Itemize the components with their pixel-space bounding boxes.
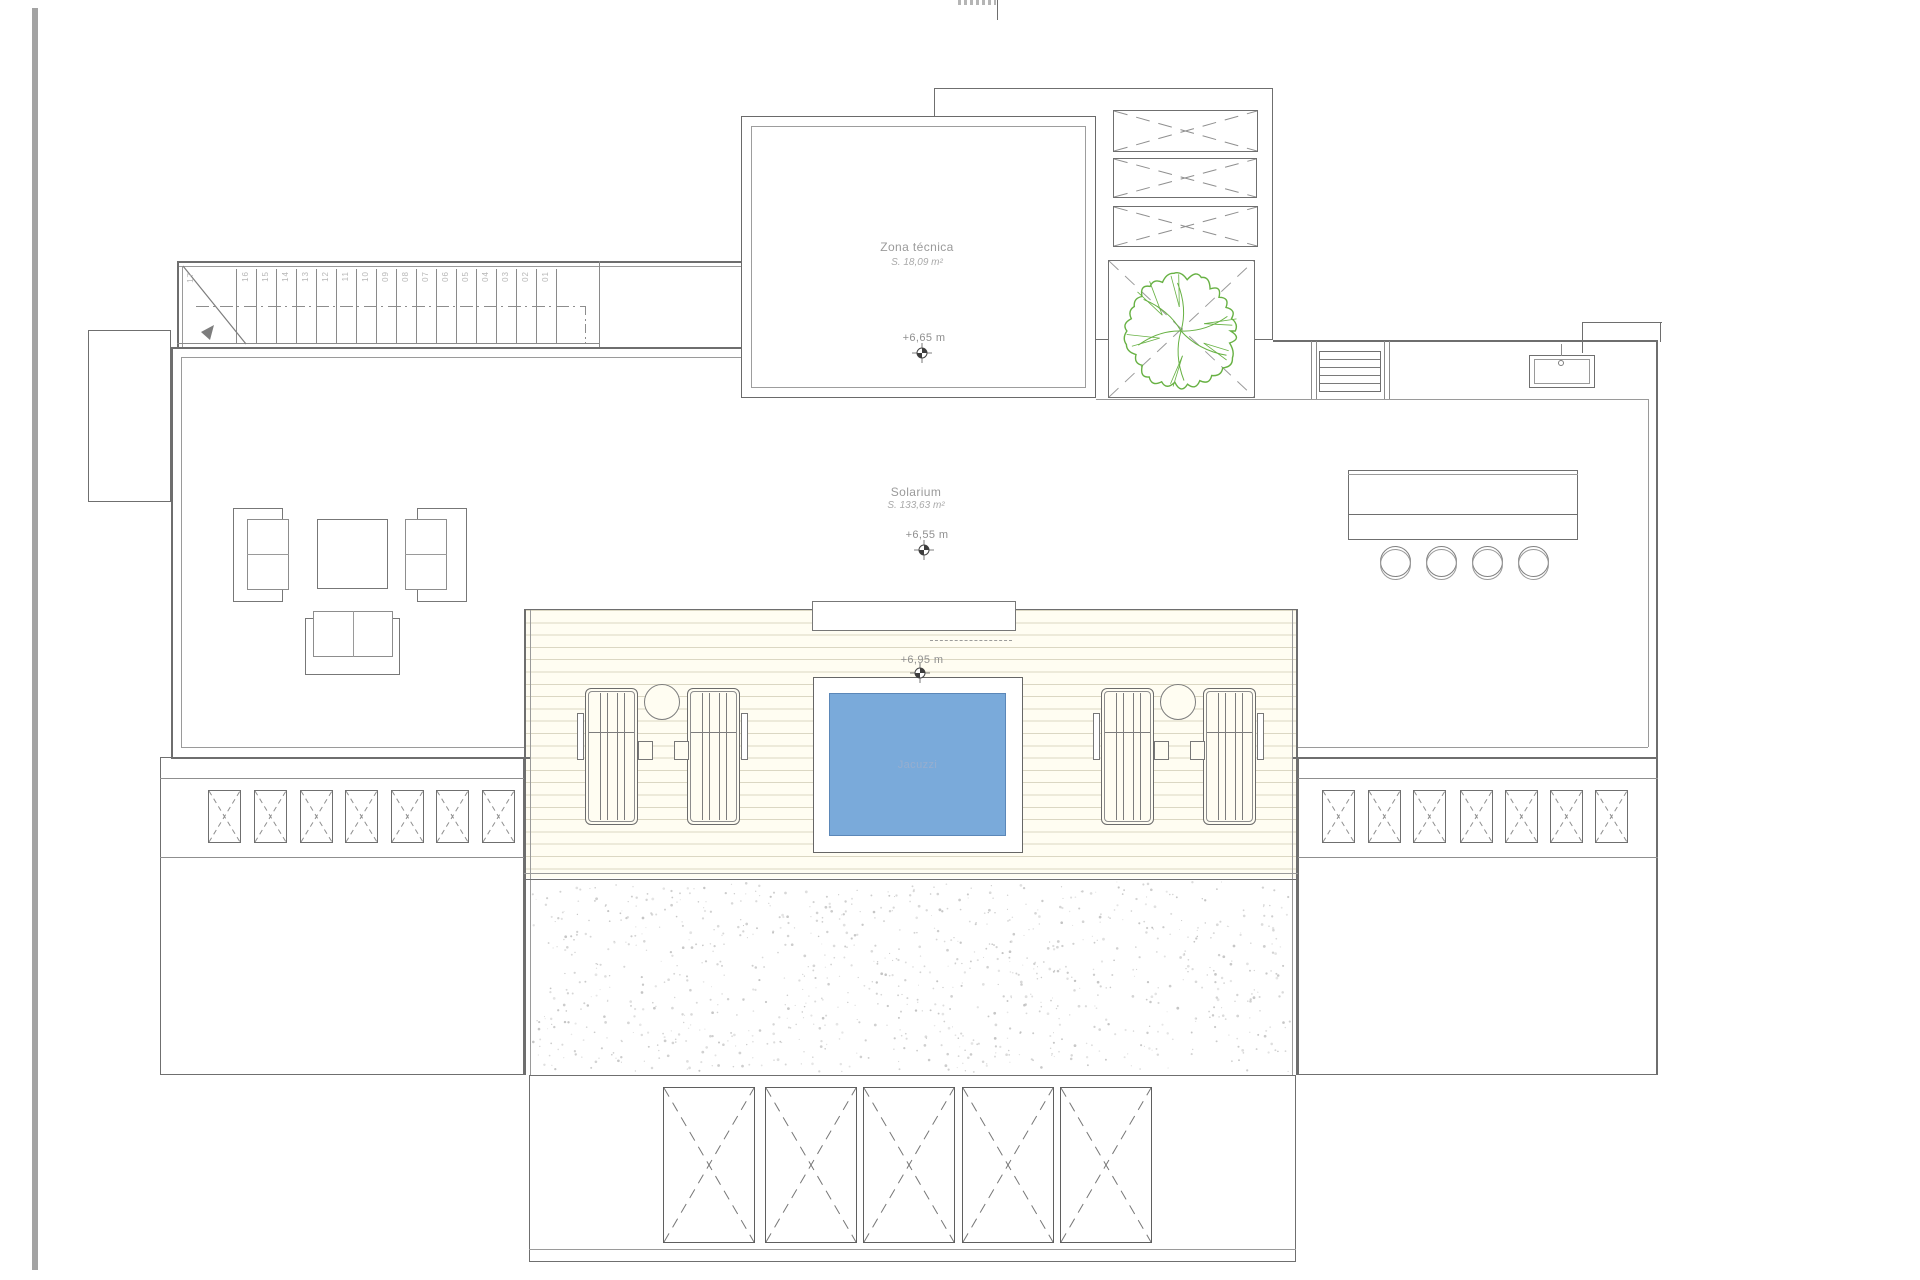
lounger-side-shelf — [577, 713, 584, 760]
dashed-x-hatch — [864, 1088, 954, 1242]
wall-line — [1561, 344, 1562, 356]
lounger-slat — [1123, 693, 1124, 820]
lounger-slat — [600, 693, 601, 820]
stair-number: 04 — [481, 271, 490, 282]
stair-centerline — [196, 306, 585, 307]
wall-line — [1316, 341, 1317, 399]
lounger-slat — [617, 693, 618, 820]
wall-line — [177, 261, 741, 263]
wall-line — [182, 266, 183, 347]
hatched-vent — [1113, 110, 1258, 152]
floor-plan: Zona técnica S. 18,09 m² +6,65 m Solariu… — [0, 0, 1920, 1280]
wall-line — [1292, 757, 1658, 759]
wall-line — [1648, 399, 1649, 747]
bar-stool-shadow-ring — [1380, 549, 1411, 580]
level-marker-icon — [912, 343, 932, 363]
zona-tecnica-area: S. 18,09 m² — [837, 257, 997, 268]
hatched-vent — [1113, 206, 1258, 247]
dashed-x-hatch — [1551, 791, 1582, 842]
bottom-block-line — [529, 1249, 1296, 1250]
grill — [1319, 351, 1381, 392]
lounger-headrest-line — [1207, 732, 1252, 733]
wall-line — [530, 609, 531, 1075]
deck-step — [812, 601, 1016, 631]
deck-side-table — [1154, 741, 1169, 760]
lounger-slat — [726, 693, 727, 820]
dashed-x-hatch — [1506, 791, 1537, 842]
lounger-side-shelf — [1093, 713, 1100, 760]
lounger-slat — [1242, 693, 1243, 820]
lounger-slat — [1218, 693, 1219, 820]
wall-line — [171, 757, 530, 759]
lounger-side-shelf — [1257, 713, 1264, 760]
wall-line — [1656, 340, 1658, 1075]
lounger-slat — [1235, 693, 1236, 820]
dashed-x-hatch — [1114, 159, 1256, 197]
dashed-x-hatch — [1114, 207, 1257, 246]
wall-line — [1389, 341, 1390, 399]
dashed-x-hatch — [766, 1088, 856, 1242]
dashed-x-hatch — [437, 791, 468, 842]
lounger-slat — [719, 693, 720, 820]
hatched-vent — [1113, 158, 1257, 198]
dashed-x-hatch — [1114, 111, 1257, 151]
pergola-beam — [1550, 790, 1583, 843]
bar-counter-divider — [1348, 514, 1578, 515]
wall-line — [1296, 609, 1298, 1075]
armchair-right-cushion-line — [405, 554, 447, 555]
stair-centerline-turn — [585, 306, 586, 344]
sofa-cushion-divider — [353, 611, 354, 657]
stair-number: 09 — [381, 271, 390, 282]
wall-line — [181, 357, 182, 747]
hatched-panel — [962, 1087, 1054, 1243]
stair-number: 12 — [321, 271, 330, 282]
bar-stool-shadow-ring — [1518, 549, 1549, 580]
dashed-x-hatch — [1369, 791, 1400, 842]
stair-number: 10 — [361, 271, 370, 282]
stair-number: 03 — [501, 271, 510, 282]
stair-number: 06 — [441, 271, 450, 282]
pergola-beam — [345, 790, 378, 843]
deck-side-table — [638, 741, 653, 760]
wall-line — [177, 266, 741, 267]
dashed-x-hatch — [1414, 791, 1445, 842]
wall-line — [599, 261, 600, 347]
sun-lounger — [585, 688, 638, 825]
wall-line — [177, 261, 179, 347]
pergola-beam — [254, 790, 287, 843]
lounger-slat — [624, 693, 625, 820]
sand-area — [530, 880, 1292, 1075]
dashed-x-hatch — [1596, 791, 1627, 842]
pergola-beam — [482, 790, 515, 843]
wall-line — [1292, 609, 1293, 1075]
armchair-left-cushion-line — [247, 554, 289, 555]
dashed-x-hatch — [1461, 791, 1492, 842]
pergola-beam — [1322, 790, 1355, 843]
pergola-beam — [1460, 790, 1493, 843]
lounger-slat — [607, 693, 608, 820]
lounger-frame — [1104, 691, 1151, 822]
bar-stool-shadow-ring — [1472, 549, 1503, 580]
sink-tap — [1558, 360, 1564, 366]
sun-lounger — [1203, 688, 1256, 825]
hatched-panel — [863, 1087, 955, 1243]
wall-line — [1384, 341, 1385, 399]
lounger-frame — [588, 691, 635, 822]
stair-number: 05 — [461, 271, 470, 282]
pergola-beam — [1368, 790, 1401, 843]
lounger-slat — [1225, 693, 1226, 820]
pergola-beam — [436, 790, 469, 843]
lounger-frame — [690, 691, 737, 822]
lounger-frame — [1206, 691, 1253, 822]
dashed-x-hatch — [1323, 791, 1354, 842]
level-marker-icon — [914, 540, 934, 560]
pergola-beam — [208, 790, 241, 843]
top-edge-mark — [958, 0, 996, 5]
sun-lounger — [1101, 688, 1154, 825]
top-edge-tick — [997, 0, 998, 20]
bar-counter — [1348, 470, 1578, 540]
left-roof-bump — [88, 330, 171, 502]
bar-stool-shadow-ring — [1426, 549, 1457, 580]
lounger-slat — [709, 693, 710, 820]
dashed-x-hatch — [346, 791, 377, 842]
stair-number: 11 — [341, 271, 350, 281]
pergola-beam — [1505, 790, 1538, 843]
deck-side-table-round — [644, 684, 680, 720]
wall-line — [1298, 747, 1648, 748]
stair-number: 15 — [261, 271, 270, 282]
dashed-x-hatch — [664, 1088, 754, 1242]
pergola-beam — [1595, 790, 1628, 843]
tree-icon — [1101, 251, 1261, 411]
solarium-label: Solarium — [836, 485, 996, 499]
dashed-x-hatch — [209, 791, 240, 842]
lounger-side-shelf — [741, 713, 748, 760]
lounger-slat — [1116, 693, 1117, 820]
stair-number: 01 — [541, 271, 550, 282]
wall-line — [1273, 340, 1657, 342]
coffee-table — [317, 519, 388, 589]
stair-number: 08 — [401, 271, 410, 282]
dashed-x-hatch — [255, 791, 286, 842]
pergola-beam — [391, 790, 424, 843]
stair-number-top: 17 — [186, 272, 195, 283]
stair-number: 07 — [421, 271, 430, 282]
stair-number: 02 — [521, 271, 530, 282]
wall-line — [160, 778, 524, 779]
level-marker-icon — [910, 663, 930, 683]
hatched-panel — [1060, 1087, 1152, 1243]
jacuzzi: Jacuzzi — [813, 677, 1023, 853]
dashed-x-hatch — [301, 791, 332, 842]
zona-tecnica-label: Zona técnica — [837, 240, 997, 254]
lounger-slat — [1140, 693, 1141, 820]
stair-number: 16 — [241, 271, 250, 282]
stair-direction-arrow — [201, 325, 214, 340]
deck-side-table — [1190, 741, 1205, 760]
wall-line — [524, 873, 1298, 874]
wall-line — [524, 609, 526, 1075]
wall-line — [181, 747, 524, 748]
lounger-headrest-line — [1105, 732, 1150, 733]
dashed-x-hatch — [1061, 1088, 1151, 1242]
wall-line — [524, 879, 1298, 880]
bar-counter-edge — [1348, 474, 1578, 475]
deck-side-table-round — [1160, 684, 1196, 720]
wall-line — [160, 857, 524, 858]
wall-line — [1311, 341, 1312, 399]
hatched-panel — [765, 1087, 857, 1243]
corner-step-line — [1582, 322, 1662, 323]
sand-stipple-texture — [530, 880, 1292, 1075]
pergola-beam — [300, 790, 333, 843]
wall-line — [171, 347, 741, 349]
wall-line — [1298, 857, 1658, 858]
solarium-area: S. 133,63 m² — [836, 500, 996, 511]
lounger-headrest-line — [691, 732, 736, 733]
stair-number: 14 — [281, 271, 290, 282]
wall-line — [1298, 778, 1658, 779]
dashed-x-hatch — [392, 791, 423, 842]
lounger-slat — [1133, 693, 1134, 820]
wall-line — [181, 357, 741, 358]
deck-side-table — [674, 741, 689, 760]
lounger-headrest-line — [589, 732, 634, 733]
corner-step-line — [1660, 322, 1661, 342]
jacuzzi-label: Jacuzzi — [898, 759, 937, 771]
jacuzzi-water: Jacuzzi — [829, 693, 1006, 836]
sun-lounger — [687, 688, 740, 825]
wall-line — [171, 347, 173, 757]
dashed-x-hatch — [483, 791, 514, 842]
stair-number: 13 — [301, 271, 310, 282]
hatched-panel — [663, 1087, 755, 1243]
page-edge-rule — [32, 8, 38, 1270]
dashed-x-hatch — [963, 1088, 1053, 1242]
hidden-edge-dashed — [930, 640, 1012, 641]
pergola-beam — [1413, 790, 1446, 843]
lounger-slat — [702, 693, 703, 820]
corner-step-line — [1582, 322, 1583, 353]
